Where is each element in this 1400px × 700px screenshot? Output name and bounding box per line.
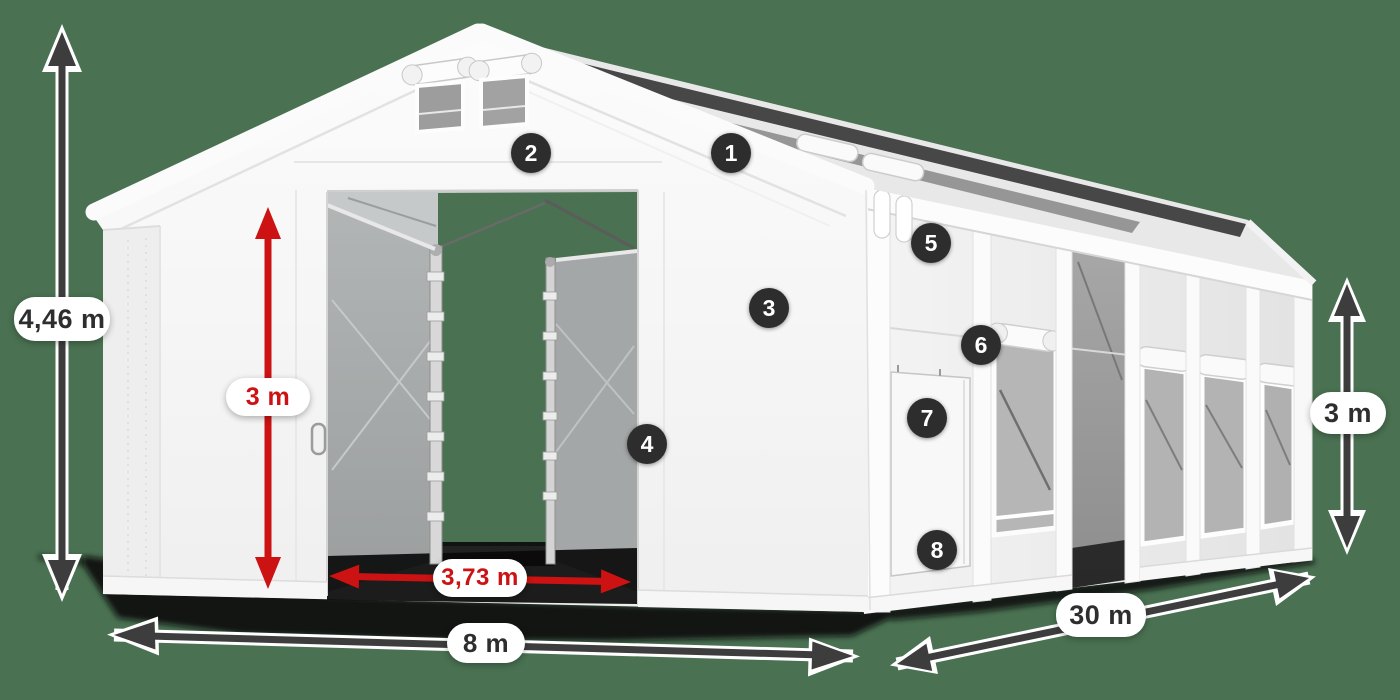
door-handle	[312, 424, 325, 454]
marker-3: 3	[749, 288, 789, 328]
dimension-label-door-height: 3 m	[226, 378, 310, 416]
door-leaf-right	[552, 251, 638, 592]
dimension-label-side-length: 30 m	[1056, 593, 1146, 637]
marker-5: 5	[911, 223, 951, 263]
product-dimension-diagram: 4,46 m 3 m 3,73 m 8 m 30 m 3 m 1 2 3 4 5…	[0, 0, 1400, 700]
marker-2: 2	[511, 133, 551, 173]
side-window	[1195, 354, 1253, 536]
marker-4: 4	[627, 424, 667, 464]
door-leaf-left	[327, 206, 438, 592]
dimension-label-front-width: 8 m	[447, 623, 525, 663]
front-door-opening	[327, 190, 638, 605]
left-wall	[103, 226, 160, 594]
open-bay-interior	[1072, 230, 1125, 588]
marker-6: 6	[961, 325, 1001, 365]
tent-illustration	[0, 0, 1400, 700]
marker-7: 7	[907, 398, 947, 438]
dimension-label-side-height: 3 m	[1310, 392, 1386, 434]
dimension-label-total-height: 4,46 m	[14, 297, 110, 341]
marker-8: 8	[917, 530, 957, 570]
side-window	[1135, 346, 1193, 544]
dimension-label-door-width: 3,73 m	[433, 559, 527, 597]
marker-1: 1	[711, 133, 751, 173]
door-frame-pole	[427, 244, 444, 564]
